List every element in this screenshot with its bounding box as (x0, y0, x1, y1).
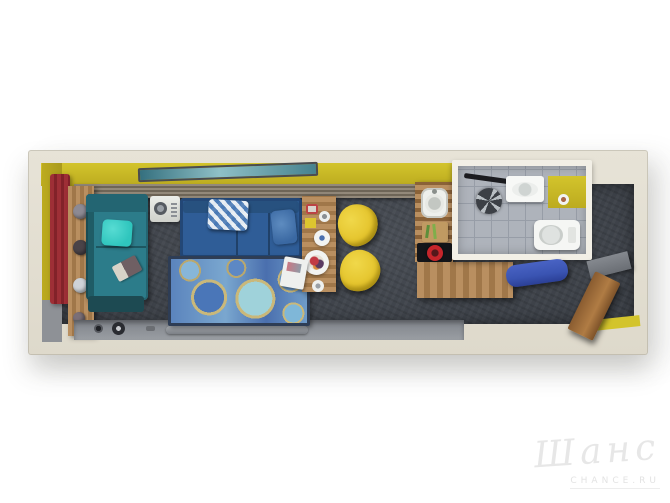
teal-daybed (86, 194, 148, 300)
washbasin (506, 176, 544, 202)
bathroom (452, 160, 592, 260)
yellow-napkin (305, 218, 316, 228)
watermark: Шанс CHANCE.RU (534, 434, 660, 489)
lattice-pattern-pillow (207, 199, 249, 231)
kitchen-counter-horizontal (417, 262, 513, 298)
cup (312, 280, 324, 292)
daybed-headrest (86, 194, 148, 212)
small-object (146, 326, 155, 331)
white-appliance (150, 196, 180, 222)
blue-sofa (180, 198, 302, 258)
tablet-on-daybed (112, 255, 143, 282)
small-plate (314, 230, 330, 246)
blue-pillow (270, 209, 297, 245)
toilet (534, 220, 580, 250)
red-curtain (50, 174, 70, 304)
floor-plan (28, 150, 648, 355)
left-wall-gray-section (42, 300, 62, 342)
dining-table (302, 196, 336, 292)
cup (319, 211, 330, 222)
cutting-board (422, 222, 448, 242)
white-tray (280, 256, 309, 290)
teal-ottoman (88, 296, 144, 312)
soundbar (166, 326, 308, 334)
shower-head-icon (476, 188, 502, 214)
bathroom-cup (558, 194, 569, 205)
speaker-icon (94, 324, 103, 333)
red-pot (427, 245, 443, 261)
watermark-title: Шанс (532, 430, 661, 475)
sofa-cushion-seam (268, 213, 270, 255)
cyan-pillow (101, 219, 133, 247)
kitchen-sink (421, 188, 448, 218)
watermark-subtitle: CHANCE.RU (570, 477, 660, 489)
small-dish (306, 204, 318, 214)
speaker-icon (112, 322, 125, 335)
